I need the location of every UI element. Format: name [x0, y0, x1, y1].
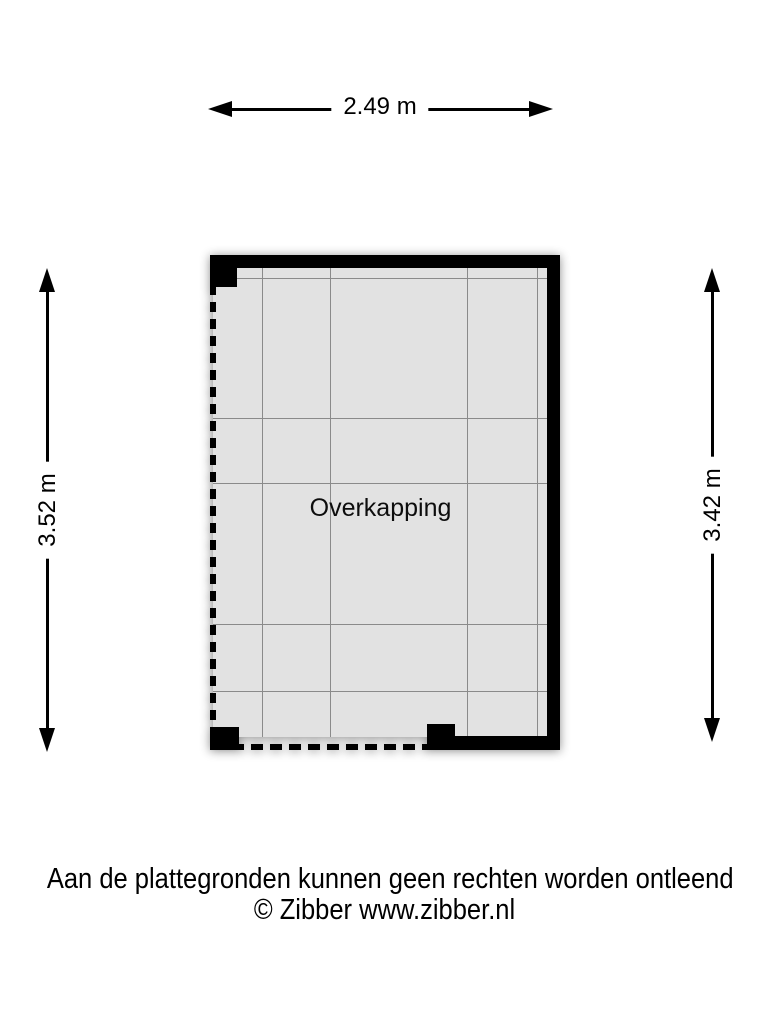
arrowhead-right-icon — [529, 101, 553, 117]
floor-grid-line — [213, 278, 548, 279]
dimension-label-left: 3.52 m — [33, 461, 63, 558]
floor-grid-line — [213, 418, 548, 419]
footer: Aan de plattegronden kunnen geen rechten… — [0, 864, 768, 926]
floor-plan-page: 2.49 m 3.52 m 3.42 m Overkapping — [0, 0, 768, 1024]
arrowhead-down-icon — [39, 728, 55, 752]
room-label: Overkapping — [213, 494, 548, 522]
open-side-bottom-dashed-line — [213, 744, 428, 750]
dimension-label-right: 3.42 m — [698, 456, 728, 553]
wall-right — [547, 255, 560, 750]
dimension-label-top: 2.49 m — [331, 92, 428, 122]
copyright-text: © Zibber www.zibber.nl — [0, 895, 768, 926]
arrowhead-down-icon — [704, 718, 720, 742]
floor-grid-line — [213, 483, 548, 484]
wall-top — [210, 255, 560, 268]
post-top-left — [210, 255, 237, 287]
disclaimer-text: Aan de plattegronden kunnen geen rechten… — [0, 864, 768, 895]
floor-grid-line — [213, 624, 548, 625]
post-bottom-middle — [427, 724, 455, 750]
floor-grid-line — [213, 691, 548, 692]
floor-plan-drawing: Overkapping — [210, 255, 560, 750]
